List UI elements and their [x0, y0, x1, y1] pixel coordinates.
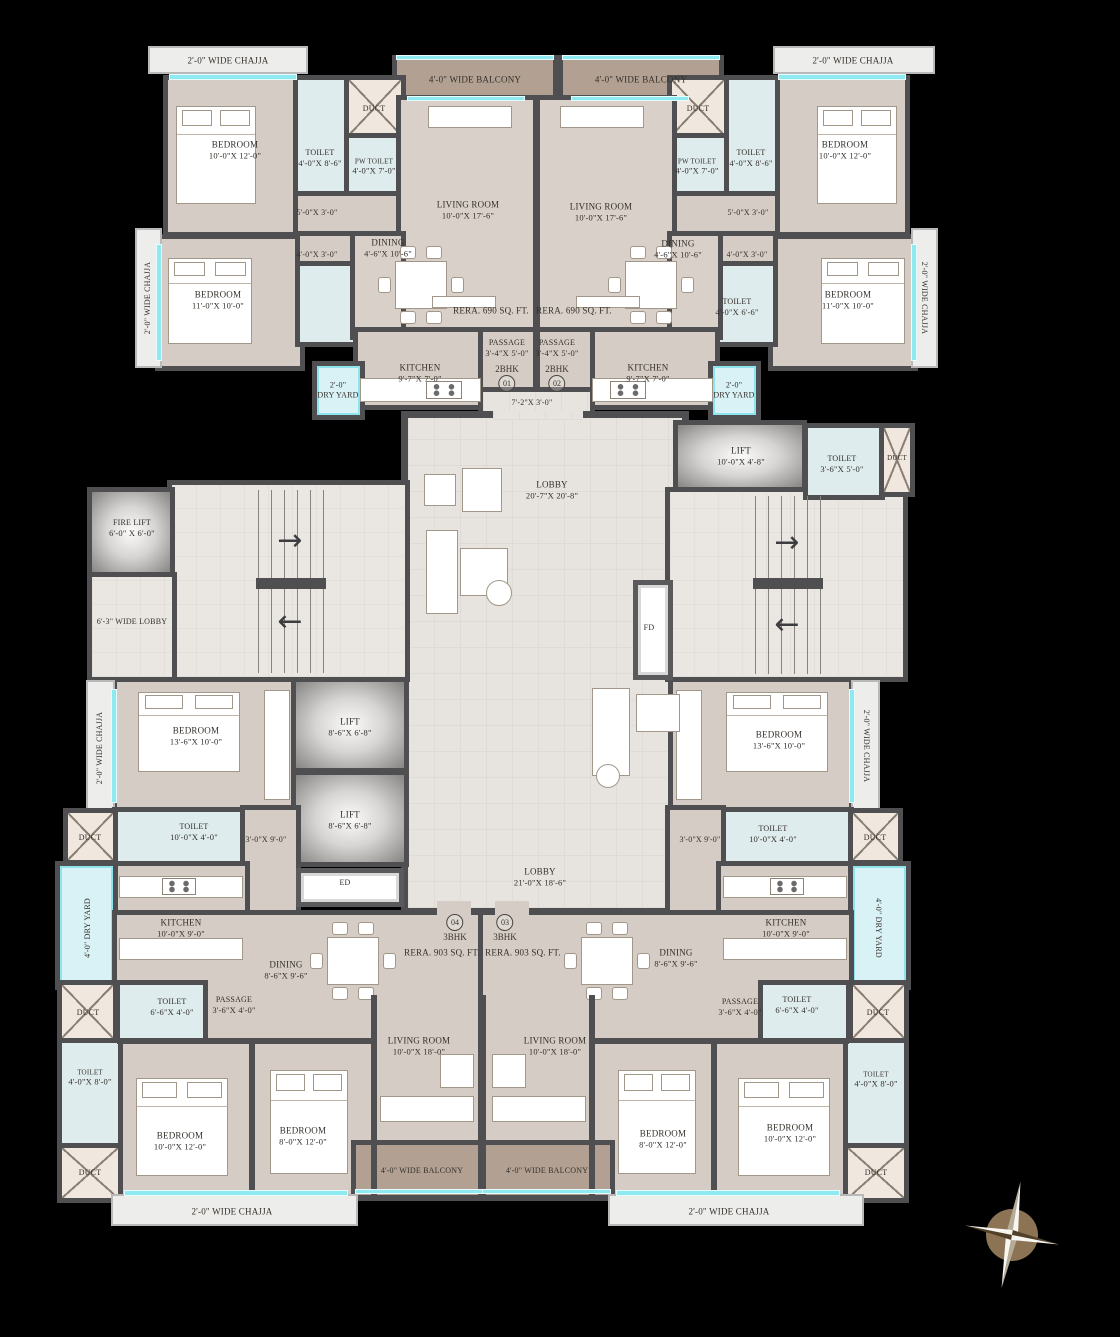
rera-label: RERA. 903 SQ. FT. — [485, 948, 561, 959]
duct-label: DUCT — [887, 454, 907, 462]
window — [356, 1190, 483, 1193]
toilet-label: TOILET4'-0"X 8'-6" — [298, 148, 341, 168]
unit-badge-04: 043BHK — [443, 914, 467, 942]
window — [779, 75, 905, 79]
stair-landing-left — [256, 578, 326, 589]
duct-label: DUCT — [864, 833, 887, 843]
dim-label: 5'-0"X 3'-0" — [728, 208, 769, 218]
sofa — [380, 1096, 474, 1122]
passage-label: PASSAGE3'-6"X 4'-0" — [718, 997, 761, 1017]
toilet-label: TOILET10'-0"X 4'-0" — [749, 824, 797, 844]
toilet-label: TOILET4'-0"X 8'-0" — [854, 1071, 897, 1090]
living-label: LIVING ROOM10'-0"X 17'-6" — [437, 200, 499, 221]
stair-down-arrow-icon: ← — [277, 607, 302, 637]
sofa — [428, 106, 512, 128]
bedroom-label: BEDROOM13'-6"X 10'-0" — [753, 730, 805, 751]
fd-label: FD — [644, 623, 655, 633]
rera-label: RERA. 903 SQ. FT. — [404, 948, 480, 959]
toilet-label: TOILET3'-6"X 5'-0" — [820, 454, 863, 474]
wall-center-bottom — [480, 995, 486, 1196]
bedroom-label: BEDROOM10'-0"X 12'-0" — [819, 140, 871, 161]
window — [125, 1191, 347, 1195]
bedroom-label: BEDROOM10'-0"X 12'-0" — [154, 1131, 206, 1152]
passage-label: PASSAGE3'-4"X 5'-0" — [535, 338, 578, 358]
unit-badge-01: 2BHK01 — [495, 364, 519, 392]
wall-bedrooms-left — [249, 1043, 255, 1196]
duct-label: DUCT — [79, 1168, 102, 1178]
dryyard-label: 2'-0"DRY YARD — [317, 380, 358, 399]
toilet-label: TOILET4'-0"X 8'-6" — [729, 148, 772, 168]
bedroom-label: BEDROOM10'-0"X 12'-0" — [209, 140, 261, 161]
kitchen-counter — [119, 938, 243, 960]
floor-lamp — [596, 764, 620, 788]
dining-set — [562, 922, 652, 1000]
room-toilet-tl — [298, 80, 346, 193]
bedroom-label: BEDROOM8'-0"X 12'-0" — [639, 1129, 687, 1150]
wall-bedrooms-right — [711, 1043, 717, 1196]
duct-label: DUCT — [79, 833, 102, 843]
dining-label: DINING4'-6"X 10'-6" — [654, 239, 702, 260]
kitchen-label: KITCHEN9'-7"X 7'-0" — [398, 363, 441, 384]
window — [157, 245, 161, 360]
dining-label: DINING4'-6"X 10'-6" — [364, 238, 412, 259]
balcony-label: 4'-0" WIDE BALCONY — [429, 75, 521, 86]
room-toilet-tr — [727, 80, 775, 193]
bed — [270, 1070, 348, 1174]
room-toilet-bl2 — [62, 1043, 118, 1143]
bed — [618, 1070, 696, 1174]
bedroom-label: BEDROOM8'-0"X 12'-0" — [279, 1126, 327, 1147]
room-toilet-tl2 — [300, 266, 355, 342]
dim-label: 3'-0"X 9'-0" — [680, 835, 721, 845]
passage-label: PASSAGE3'-4"X 5'-0" — [485, 338, 528, 358]
dryyard-label: 4'-0" DRY YARD — [83, 898, 93, 958]
wall-bedroom-top-left — [117, 1038, 377, 1044]
stove-icon — [610, 381, 646, 399]
unit-badge-02: 2BHK02 — [545, 364, 569, 392]
wall-living-left — [371, 995, 377, 1196]
toilet-label: TOILET6'-6"X 4'-0" — [150, 997, 193, 1017]
chajja-label: 2'-0" WIDE CHAJJA — [95, 712, 105, 784]
sofa — [426, 530, 458, 614]
window — [912, 245, 916, 360]
dim-label: 4'-0"X 3'-0" — [727, 250, 768, 260]
wide-lobby-63 — [92, 577, 172, 677]
dim-label: 7'-2"X 3'-0" — [512, 398, 553, 408]
dining-label: DINING8'-6"X 9'-6" — [654, 948, 697, 969]
window — [408, 97, 524, 100]
window — [483, 1190, 610, 1193]
room-toilet-br2 — [848, 1043, 904, 1143]
lift-label: LIFT10'-0"X 4'-8" — [717, 446, 765, 467]
chajja-label: 2'-0" WIDE CHAJJA — [688, 1207, 769, 1218]
chajja-label: 2'-0" WIDE CHAJJA — [191, 1207, 272, 1218]
dining-set — [308, 922, 398, 1000]
fire-lift-label: FIRE LIFT6'-0" X 6'-0" — [109, 518, 155, 538]
armchair — [424, 474, 456, 506]
wide-lobby-label: 6'-3" WIDE LOBBY — [97, 617, 167, 627]
toilet-label: TOILET6'-6"X 4'-0" — [775, 995, 818, 1015]
sofa — [592, 688, 630, 776]
duct-label: DUCT — [865, 1168, 888, 1178]
dining-label: DINING8'-6"X 9'-6" — [264, 960, 307, 981]
lift-label: LIFT8'-6"X 6'-8" — [328, 717, 371, 738]
chajja-label: 2'-0" WIDE CHAJJA — [919, 262, 929, 334]
kitchen-label: KITCHEN10'-0"X 9'-0" — [762, 918, 810, 939]
stair-landing-right — [753, 578, 823, 589]
living-label: LIVING ROOM10'-0"X 18'-0" — [388, 1036, 450, 1057]
balcony-label: 4'-0" WIDE BALCONY — [381, 1166, 463, 1176]
bedroom-label: BEDROOM11'-0"X 10'-0" — [192, 290, 244, 311]
lobby-door-top — [493, 411, 583, 420]
stair-up-arrow-icon: → — [774, 528, 799, 558]
wardrobe — [264, 690, 290, 800]
bedroom-label: BEDROOM13'-6"X 10'-0" — [170, 726, 222, 747]
duct-label: DUCT — [867, 1008, 890, 1018]
duct-label: DUCT — [77, 1008, 100, 1018]
chajja-label: 2'-0" WIDE CHAJJA — [143, 262, 153, 334]
pw-toilet-label: PW TOILET4'-0"X 7'-0" — [352, 158, 395, 177]
unit-badge-03: 033BHK — [493, 914, 517, 942]
window — [563, 56, 719, 59]
lobby-label: LOBBY21'-0"X 18'-6" — [514, 867, 566, 888]
rera-label: RERA. 690 SQ. FT. — [536, 306, 612, 317]
sofa — [492, 1096, 586, 1122]
living-label: LIVING ROOM10'-0"X 18'-0" — [524, 1036, 586, 1057]
kitchen-counter — [723, 938, 847, 960]
duct-label: DUCT — [363, 104, 386, 114]
stove-icon — [426, 381, 462, 399]
armchair — [636, 694, 680, 732]
bedroom-label: BEDROOM11'-0"X 10'-0" — [822, 290, 874, 311]
dim-label: 5'-0"X 3'-0" — [297, 208, 338, 218]
floor-lamp — [486, 580, 512, 606]
duct-label: DUCT — [687, 104, 710, 114]
passage-label: PASSAGE3'-6"X 4'-0" — [212, 995, 255, 1015]
balcony-label: 4'-0" WIDE BALCONY — [506, 1166, 588, 1176]
stove-icon — [770, 878, 804, 895]
kitchen-label: KITCHEN10'-0"X 9'-0" — [157, 918, 205, 939]
floor-plan: → ← → ← — [0, 0, 1120, 1337]
stove-icon — [162, 878, 196, 895]
bed — [136, 1078, 228, 1176]
stair-up-arrow-icon: → — [277, 526, 302, 556]
toilet-label: TOILET10'-0"X 4'-0" — [170, 822, 218, 842]
window — [850, 690, 854, 802]
chajja-label: 2'-0" WIDE CHAJJA — [187, 56, 268, 67]
window — [397, 56, 553, 59]
stair-down-arrow-icon: ← — [774, 610, 799, 640]
window — [617, 1191, 839, 1195]
lobby-label: LOBBY20'-7"X 20'-8" — [526, 480, 578, 501]
toilet-label: TOILET4'-0"X 6'-6" — [715, 297, 758, 317]
rera-label: RERA. 690 SQ. FT. — [453, 306, 529, 317]
pw-toilet-label: PW TOILET4'-0"X 7'-0" — [675, 158, 718, 177]
toilet-label: TOILET4'-0"X 8'-0" — [68, 1069, 111, 1088]
window — [572, 97, 688, 100]
dim-label: 3'-0"X 9'-0" — [246, 835, 287, 845]
armchair — [462, 468, 502, 512]
chajja-label: 2'-0" WIDE CHAJJA — [812, 56, 893, 67]
living-label: LIVING ROOM10'-0"X 17'-6" — [570, 202, 632, 223]
ed-label: ED — [339, 878, 350, 888]
chajja-label: 2'-0" WIDE CHAJJA — [861, 710, 871, 782]
bedroom-label: BEDROOM10'-0"X 12'-0" — [764, 1123, 816, 1144]
kitchen-label: KITCHEN9'-7"X 7'-0" — [626, 363, 669, 384]
dryyard-label: 2'-0"DRY YARD — [713, 380, 754, 399]
wall-bedroom-top-right — [589, 1038, 849, 1044]
dim-label: 4'-0"X 3'-0" — [297, 250, 338, 260]
window — [170, 75, 296, 79]
armchair — [440, 1054, 474, 1088]
balcony-label: 4'-0" WIDE BALCONY — [595, 75, 687, 86]
compass-rose-icon — [957, 1178, 1067, 1302]
dryyard-label: 4'-0" DRY YARD — [873, 898, 883, 958]
window — [112, 690, 116, 802]
sofa — [560, 106, 644, 128]
lift-label: LIFT8'-6"X 6'-8" — [328, 810, 371, 831]
wall-living-right — [589, 995, 595, 1196]
armchair — [492, 1054, 526, 1088]
